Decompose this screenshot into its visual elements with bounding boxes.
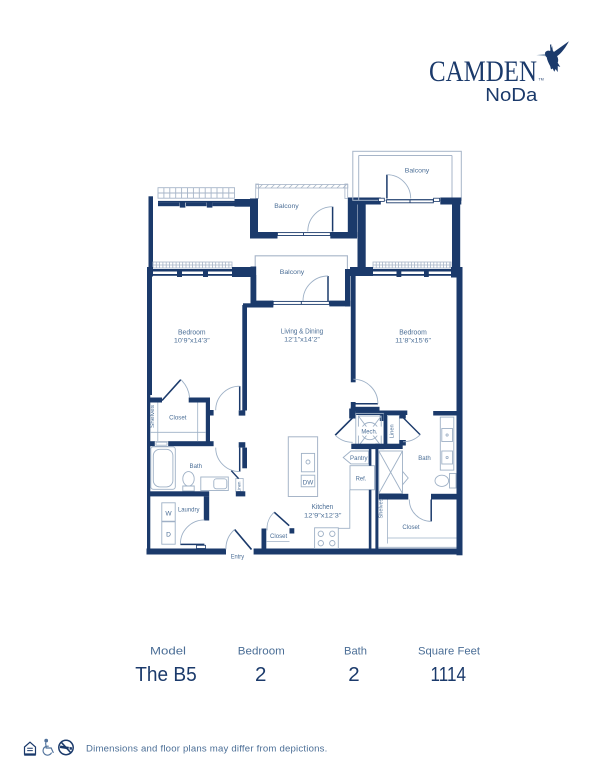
svg-text:NoDa: NoDa bbox=[485, 85, 538, 105]
svg-text:Kitchen: Kitchen bbox=[312, 502, 334, 511]
svg-text:Living & Dining: Living & Dining bbox=[281, 327, 323, 336]
svg-text:CAMDEN: CAMDEN bbox=[429, 55, 537, 88]
svg-text:Closet: Closet bbox=[169, 414, 186, 421]
svg-text:TM: TM bbox=[539, 78, 544, 82]
svg-text:Balcony: Balcony bbox=[405, 168, 430, 175]
svg-text:Laundry: Laundry bbox=[178, 507, 200, 514]
svg-text:Closet: Closet bbox=[270, 533, 287, 540]
svg-text:Entry: Entry bbox=[231, 554, 245, 561]
svg-text:Shelves: Shelves bbox=[150, 405, 156, 428]
svg-text:Bath: Bath bbox=[344, 646, 367, 658]
svg-text:Bath: Bath bbox=[418, 455, 431, 462]
svg-text:Pantry: Pantry bbox=[350, 455, 368, 462]
svg-text:Balcony: Balcony bbox=[280, 269, 305, 276]
svg-text:10’9”x14’3”: 10’9”x14’3” bbox=[174, 337, 211, 344]
svg-text:2: 2 bbox=[348, 663, 359, 686]
svg-text:Dimensions and floor plans may: Dimensions and floor plans may differ fr… bbox=[86, 744, 328, 755]
svg-text:Bedroom: Bedroom bbox=[399, 327, 427, 336]
svg-text:2: 2 bbox=[255, 663, 266, 686]
svg-text:Shelves: Shelves bbox=[379, 498, 385, 518]
svg-text:Bedroom: Bedroom bbox=[178, 327, 206, 336]
svg-text:Bedroom: Bedroom bbox=[238, 646, 285, 658]
svg-text:12’9”x12’3”: 12’9”x12’3” bbox=[304, 512, 342, 519]
svg-text:11’8”x15’6”: 11’8”x15’6” bbox=[395, 337, 432, 344]
svg-text:Linen: Linen bbox=[237, 481, 242, 492]
svg-text:Ref.: Ref. bbox=[356, 475, 367, 482]
svg-text:D: D bbox=[166, 532, 171, 539]
svg-text:Square Feet: Square Feet bbox=[418, 646, 480, 658]
svg-text:Linen: Linen bbox=[389, 424, 395, 438]
svg-text:Bath: Bath bbox=[190, 463, 203, 470]
svg-text:W: W bbox=[165, 511, 172, 518]
svg-text:DW: DW bbox=[303, 479, 315, 486]
svg-text:The B5: The B5 bbox=[135, 663, 197, 686]
svg-text:Model: Model bbox=[150, 646, 186, 658]
svg-text:Balcony: Balcony bbox=[274, 203, 299, 210]
svg-text:1114: 1114 bbox=[431, 663, 467, 686]
svg-text:Closet: Closet bbox=[402, 524, 419, 531]
svg-text:12’1”x14’2”: 12’1”x14’2” bbox=[284, 337, 320, 344]
svg-text:Mech.: Mech. bbox=[361, 429, 377, 436]
